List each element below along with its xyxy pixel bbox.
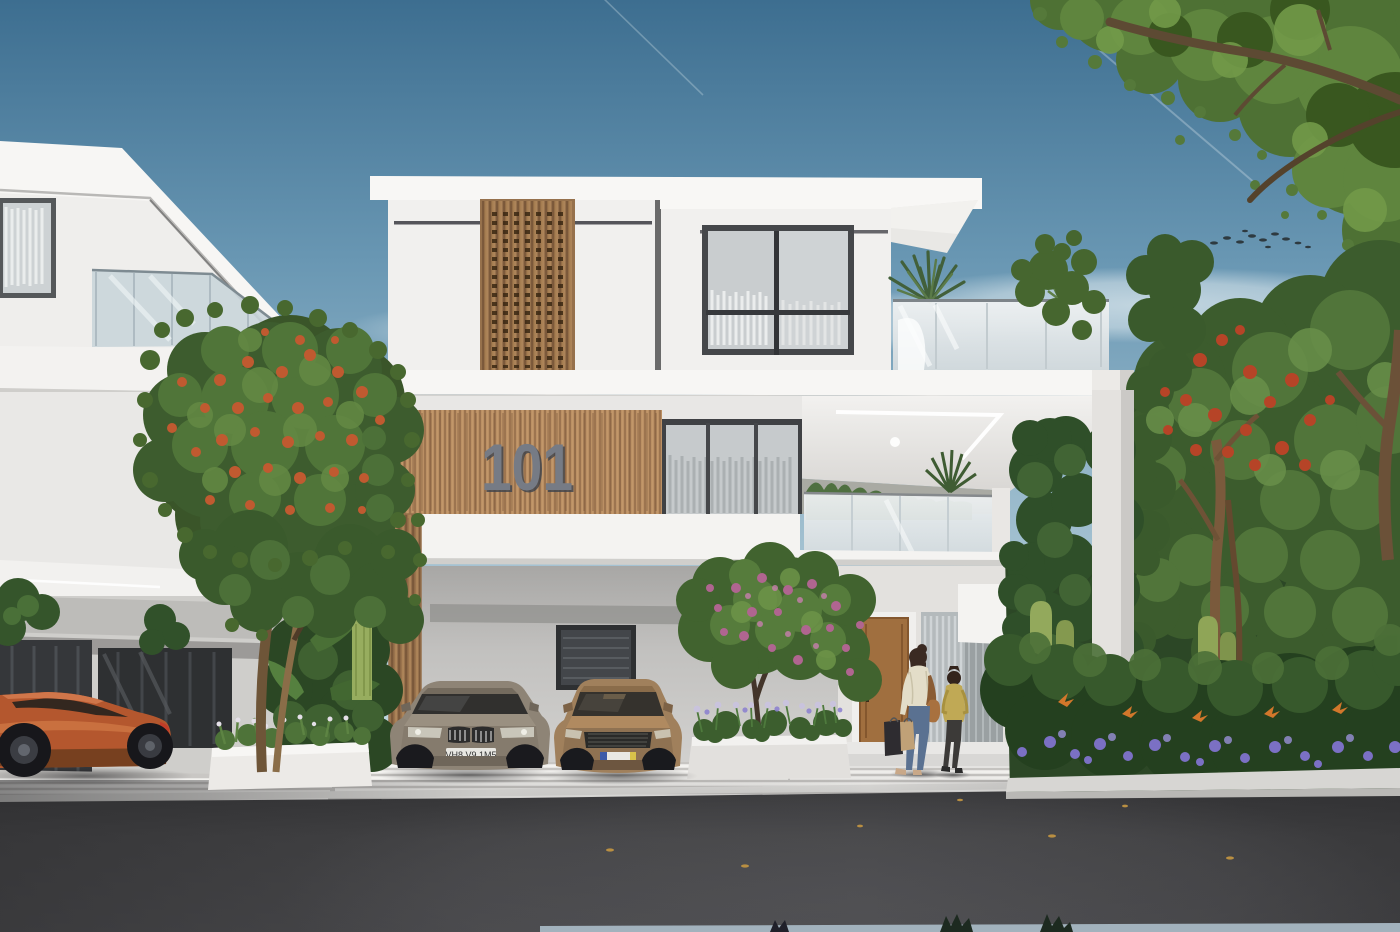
svg-text:101: 101 xyxy=(481,430,573,504)
